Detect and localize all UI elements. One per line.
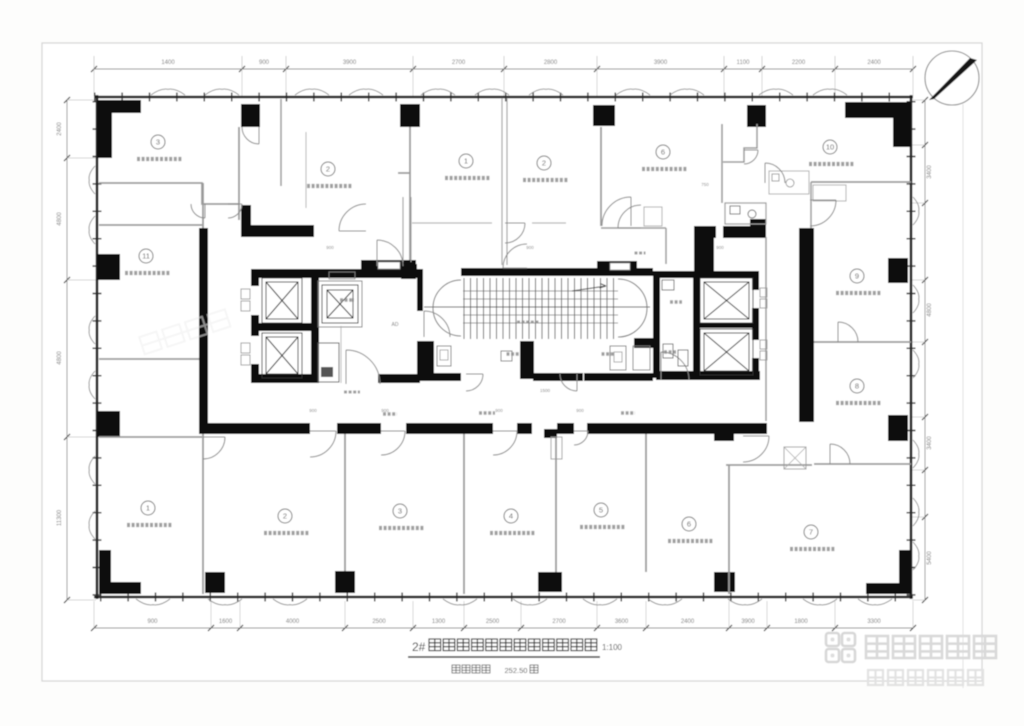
svg-text:1: 1 xyxy=(464,157,468,166)
svg-text:900: 900 xyxy=(495,408,503,413)
svg-text:1500: 1500 xyxy=(540,388,551,393)
svg-text:8: 8 xyxy=(855,382,859,391)
svg-text:3900: 3900 xyxy=(654,60,668,66)
svg-text:4800: 4800 xyxy=(57,212,63,226)
svg-text:900: 900 xyxy=(259,60,270,66)
svg-text:5400: 5400 xyxy=(927,551,933,565)
svg-text:2400: 2400 xyxy=(681,619,695,625)
svg-text:9: 9 xyxy=(855,272,859,281)
svg-text:3400: 3400 xyxy=(927,165,933,179)
svg-text:900: 900 xyxy=(716,245,724,250)
svg-text:6: 6 xyxy=(687,520,691,529)
svg-text:3: 3 xyxy=(398,507,402,516)
svg-text:2#: 2# xyxy=(412,640,426,654)
svg-text:2200: 2200 xyxy=(792,60,806,66)
svg-text:1600: 1600 xyxy=(219,619,233,625)
svg-text:3300: 3300 xyxy=(867,619,881,625)
svg-text:3600: 3600 xyxy=(615,619,629,625)
svg-text:1300: 1300 xyxy=(432,619,446,625)
svg-text:2700: 2700 xyxy=(452,60,466,66)
svg-text:5: 5 xyxy=(599,506,603,515)
svg-text:3: 3 xyxy=(156,138,160,147)
svg-text:900: 900 xyxy=(381,408,389,413)
svg-text:750: 750 xyxy=(701,182,709,187)
svg-text:900: 900 xyxy=(576,408,584,413)
svg-text:2700: 2700 xyxy=(552,619,566,625)
svg-text:4000: 4000 xyxy=(286,619,300,625)
svg-text:2500: 2500 xyxy=(372,619,386,625)
svg-text:2400: 2400 xyxy=(57,122,63,136)
svg-text:2500: 2500 xyxy=(486,619,500,625)
svg-text:7: 7 xyxy=(809,528,813,537)
svg-text:3900: 3900 xyxy=(343,60,357,66)
svg-text:3900: 3900 xyxy=(741,619,755,625)
svg-text:1:100: 1:100 xyxy=(602,643,623,652)
svg-text:900: 900 xyxy=(147,619,158,625)
svg-text:1400: 1400 xyxy=(161,60,175,66)
svg-text:2: 2 xyxy=(283,512,287,521)
svg-text:1100: 1100 xyxy=(737,60,751,66)
svg-text:900: 900 xyxy=(526,245,534,250)
svg-text:2400: 2400 xyxy=(867,60,881,66)
svg-text:AD: AD xyxy=(392,322,399,328)
svg-text:1800: 1800 xyxy=(794,619,808,625)
svg-text:4: 4 xyxy=(509,512,513,521)
svg-text:3400: 3400 xyxy=(927,436,933,450)
svg-text:1: 1 xyxy=(146,504,150,513)
svg-text:4800: 4800 xyxy=(927,303,933,317)
svg-text:2800: 2800 xyxy=(544,60,558,66)
svg-text:11300: 11300 xyxy=(57,509,63,526)
svg-text:252.50: 252.50 xyxy=(505,666,528,675)
svg-text:900: 900 xyxy=(326,245,334,250)
svg-text:10: 10 xyxy=(826,143,834,152)
svg-text:2: 2 xyxy=(542,159,546,168)
svg-text:4800: 4800 xyxy=(57,351,63,365)
svg-text:6: 6 xyxy=(661,148,665,157)
svg-text:2: 2 xyxy=(326,165,330,174)
svg-text:900: 900 xyxy=(309,408,317,413)
svg-text:11: 11 xyxy=(142,252,150,261)
